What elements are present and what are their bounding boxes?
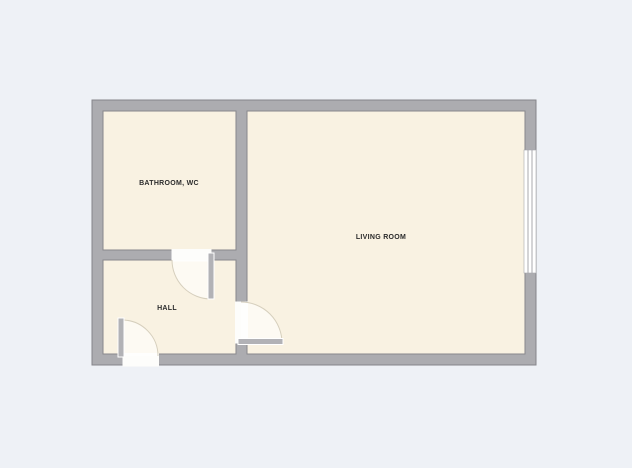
window-glass <box>524 150 536 273</box>
window-symbol <box>524 150 536 273</box>
hall-label: HALL <box>157 305 177 312</box>
living-room-label: LIVING ROOM <box>356 234 406 241</box>
bathroom-doorway-opening <box>172 249 212 262</box>
entrance-door-leaf <box>118 318 124 357</box>
floor-plan-canvas: BATHROOM, WC HALL LIVING ROOM <box>0 0 632 468</box>
room-living <box>247 111 525 354</box>
living-room-door-leaf <box>238 339 283 345</box>
floor-plan: BATHROOM, WC HALL LIVING ROOM <box>0 0 632 468</box>
bathroom-label: BATHROOM, WC <box>139 180 199 187</box>
bathroom-door-leaf <box>208 253 214 299</box>
